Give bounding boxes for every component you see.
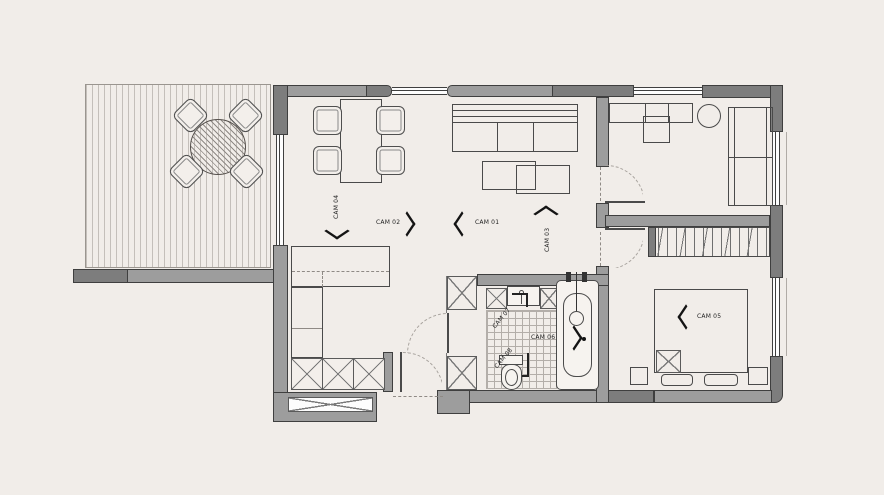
window-sill-line — [786, 278, 787, 356]
shower-hose-line — [576, 272, 577, 312]
wall-segment — [605, 215, 770, 227]
window — [392, 87, 447, 95]
wardrobe-end-cap — [648, 227, 656, 257]
window — [772, 278, 780, 356]
sofa-back-line — [453, 110, 577, 111]
duct-shaft — [447, 276, 477, 310]
dining-chair — [376, 106, 405, 135]
kitchen-counter-dash — [322, 272, 323, 287]
wall-segment — [437, 390, 470, 414]
door-swing-arc — [605, 165, 643, 203]
toilet-bowl-inner — [505, 369, 518, 386]
kitchen-counter-divider — [292, 328, 322, 329]
door-leaf — [605, 201, 645, 203]
chevron-down-icon — [324, 223, 349, 240]
bathroom-cabinet — [486, 288, 507, 309]
door-swing-arc — [605, 230, 643, 268]
kitchen-base-cabinet — [322, 358, 354, 390]
desk-chair — [697, 104, 721, 128]
floor-plan: CAM 01 CAM 02 CAM 03 CAM 04 CAM 05 CAM 0… — [0, 0, 884, 495]
wall-face-line — [446, 353, 447, 390]
door-swing-arc — [407, 313, 447, 353]
shower-head-icon — [569, 311, 584, 326]
wall-segment — [596, 97, 609, 167]
wall-segment — [273, 85, 288, 135]
nightstand — [748, 367, 768, 385]
cam-point-dot — [582, 337, 586, 341]
bath-faucet-icon — [566, 272, 571, 282]
cam-label: CAM 06 — [531, 335, 555, 341]
wall-segment — [654, 390, 772, 403]
sofa-cushion-line — [497, 122, 498, 151]
wall-segment — [127, 269, 283, 283]
window — [634, 87, 702, 95]
sofa-cushion-line — [533, 122, 534, 151]
door-swing-arc — [402, 352, 442, 392]
chevron-up-icon — [533, 206, 558, 223]
daybed-line — [729, 157, 772, 158]
cam-label: CAM 03 — [545, 228, 551, 252]
dining-chair — [376, 146, 405, 175]
door-opening-dash — [600, 232, 601, 266]
pillow — [704, 374, 738, 386]
kitchen-counter-dash — [292, 271, 389, 272]
duct-shaft — [447, 356, 477, 390]
bed-sheet-fold — [656, 350, 681, 373]
cam-label: CAM 05 — [697, 314, 721, 320]
window — [276, 135, 284, 245]
kitchen-counter — [291, 287, 323, 358]
window — [772, 132, 780, 205]
kitchen-base-cabinet — [291, 358, 323, 390]
nightstand — [630, 367, 648, 385]
planter-niche — [288, 397, 373, 412]
window-sill-line — [786, 132, 787, 205]
dining-chair — [313, 106, 342, 135]
desk-monitor — [643, 116, 670, 143]
door-leaf — [447, 313, 449, 353]
wall-segment — [770, 205, 783, 278]
door-leaf — [605, 228, 645, 230]
wall-face-line — [446, 276, 447, 313]
wall-segment — [447, 85, 554, 97]
living-sofa — [452, 104, 578, 152]
wall-segment — [552, 85, 634, 97]
sofa-back-line — [453, 122, 577, 123]
sofa-back-line — [453, 116, 577, 117]
door-leaf — [400, 352, 402, 392]
wall-segment — [366, 85, 392, 97]
cam-label: CAM 04 — [334, 195, 340, 219]
kitchen-counter — [291, 246, 390, 287]
bath-faucet-icon — [582, 272, 587, 282]
wardrobe — [648, 227, 770, 257]
door-threshold-dash — [393, 396, 443, 397]
cabinet-door-mark — [512, 293, 528, 307]
coffee-table — [516, 165, 570, 194]
cam-label: CAM 01 — [475, 220, 499, 226]
cam-label: CAM 02 — [376, 220, 400, 226]
chevron-left-icon — [454, 211, 471, 236]
wall-segment — [73, 269, 129, 283]
door-opening-dash — [600, 167, 601, 201]
kitchen-base-cabinet — [353, 358, 385, 390]
pillow — [661, 374, 693, 386]
chevron-right-icon — [399, 211, 416, 236]
dining-chair — [313, 146, 342, 175]
